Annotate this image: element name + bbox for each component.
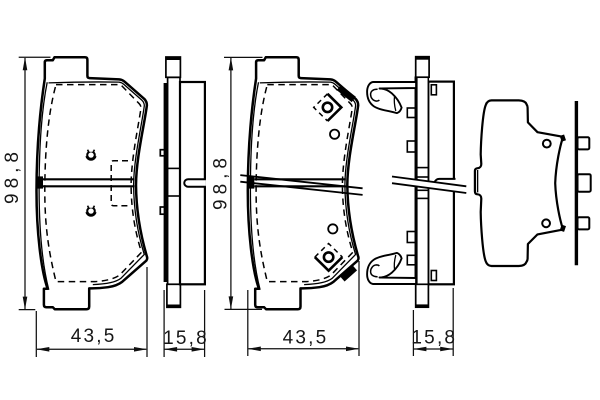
svg-text:98,8: 98,8 <box>211 153 232 210</box>
svg-text:43,5: 43,5 <box>71 326 117 347</box>
svg-text:15,8: 15,8 <box>411 328 457 349</box>
svg-text:98,8: 98,8 <box>2 147 23 204</box>
svg-text:15,8: 15,8 <box>163 328 209 349</box>
svg-text:43,5: 43,5 <box>283 327 329 348</box>
